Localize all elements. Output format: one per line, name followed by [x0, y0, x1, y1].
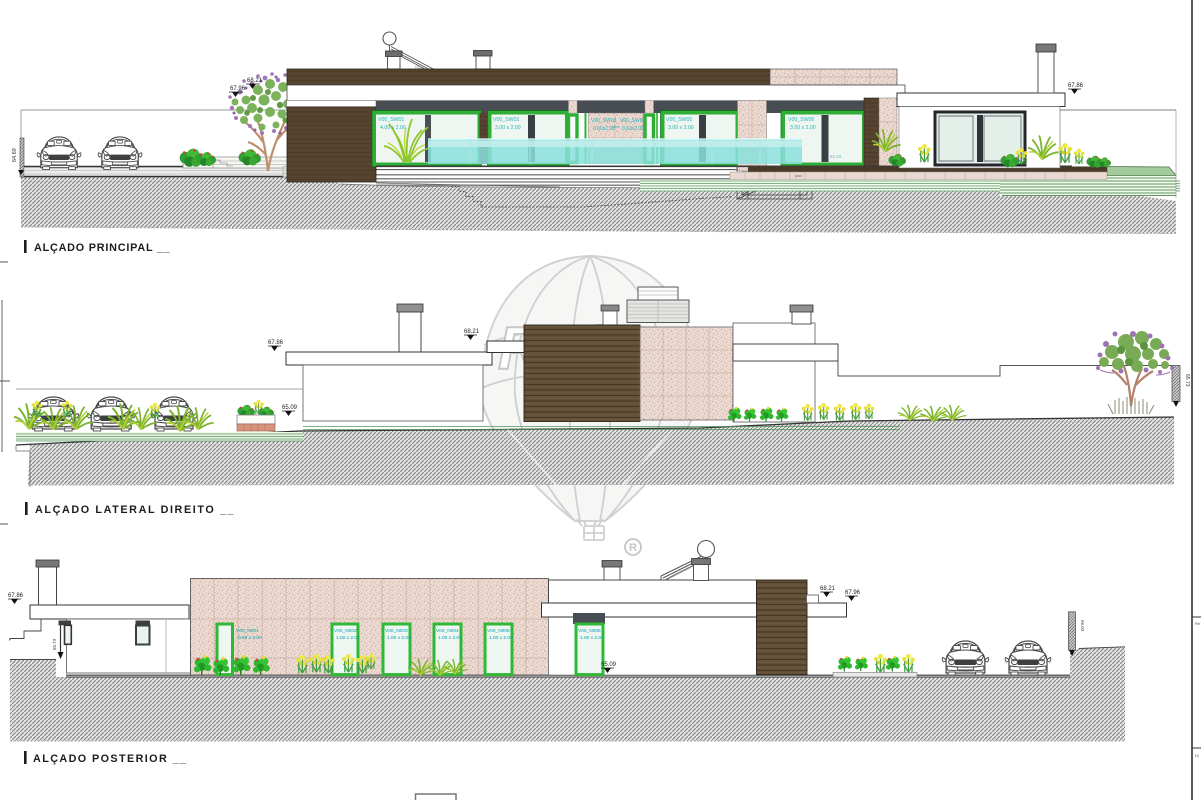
svg-text:61.04: 61.04 — [830, 154, 842, 159]
svg-text:1.00 x 2.00: 1.00 x 2.00 — [336, 635, 360, 641]
svg-text:V00_SW02: V00_SW02 — [493, 117, 519, 123]
svg-text:68.21: 68.21 — [464, 329, 480, 335]
svg-text:R: R — [629, 542, 637, 554]
svg-text:V00_SW04: V00_SW04 — [620, 118, 646, 124]
svg-text:Re: Re — [1195, 621, 1201, 626]
svg-text:V00_SW06: V00_SW06 — [788, 117, 814, 123]
svg-text:V00_N003: V00_N003 — [385, 628, 408, 634]
svg-text:V00_SW05: V00_SW05 — [666, 117, 692, 123]
svg-text:65.73: 65.73 — [1184, 374, 1190, 387]
svg-text:67.86: 67.86 — [8, 593, 24, 599]
svg-text:ALÇADO LATERAL DIREITO __: ALÇADO LATERAL DIREITO __ — [35, 504, 235, 516]
svg-text:1.00 x 2.00: 1.00 x 2.00 — [438, 635, 462, 641]
svg-text:67.86: 67.86 — [1068, 83, 1084, 89]
svg-text:V00_SW03: V00_SW03 — [591, 118, 617, 124]
svg-text:1.00 x 2.00: 1.00 x 2.00 — [387, 635, 411, 641]
svg-text:V00_N002: V00_N002 — [334, 628, 357, 634]
svg-text:67.96: 67.96 — [230, 86, 246, 92]
svg-text:65.09: 65.09 — [282, 405, 298, 411]
svg-text:65.73: 65.73 — [52, 638, 57, 650]
svg-text:3.00 x 2.00: 3.00 x 2.00 — [495, 125, 521, 131]
svg-text:68.21: 68.21 — [820, 586, 836, 592]
svg-text:4.00 x 2.00: 4.00 x 2.00 — [380, 125, 406, 131]
svg-text:0.60 x 2.00: 0.60 x 2.00 — [238, 635, 262, 641]
svg-text:68.21: 68.21 — [247, 78, 263, 84]
svg-text:pad: pad — [795, 173, 802, 178]
svg-text:ALÇADO POSTERIOR __: ALÇADO POSTERIOR __ — [33, 753, 187, 765]
svg-text:3.00 x 2.00: 3.00 x 2.00 — [790, 125, 816, 131]
svg-text:V00_SW01: V00_SW01 — [378, 117, 404, 123]
svg-text:Di: Di — [1195, 753, 1199, 758]
svg-text:V00_N006: V00_N006 — [578, 628, 601, 634]
svg-text:3.00 x 2.00: 3.00 x 2.00 — [668, 125, 694, 131]
svg-text:66.03: 66.03 — [1080, 620, 1085, 632]
svg-text:V00_N005: V00_N005 — [487, 628, 510, 634]
svg-text:V00_N004: V00_N004 — [436, 628, 459, 634]
svg-text:0.60x2.00: 0.60x2.00 — [593, 126, 615, 132]
svg-text:67.96: 67.96 — [845, 590, 861, 596]
svg-text:1.00 x 2.00: 1.00 x 2.00 — [489, 635, 513, 641]
svg-text:64.69: 64.69 — [12, 148, 18, 162]
svg-text:67.86: 67.86 — [268, 340, 284, 346]
svg-text:1.00 x 2.00: 1.00 x 2.00 — [580, 635, 604, 641]
svg-text:V00_N001: V00_N001 — [236, 628, 259, 634]
svg-text:0.60x2.00: 0.60x2.00 — [622, 126, 644, 132]
svg-text:65.09: 65.09 — [601, 662, 617, 668]
svg-text:ALÇADO PRINCIPAL __: ALÇADO PRINCIPAL __ — [34, 242, 171, 254]
